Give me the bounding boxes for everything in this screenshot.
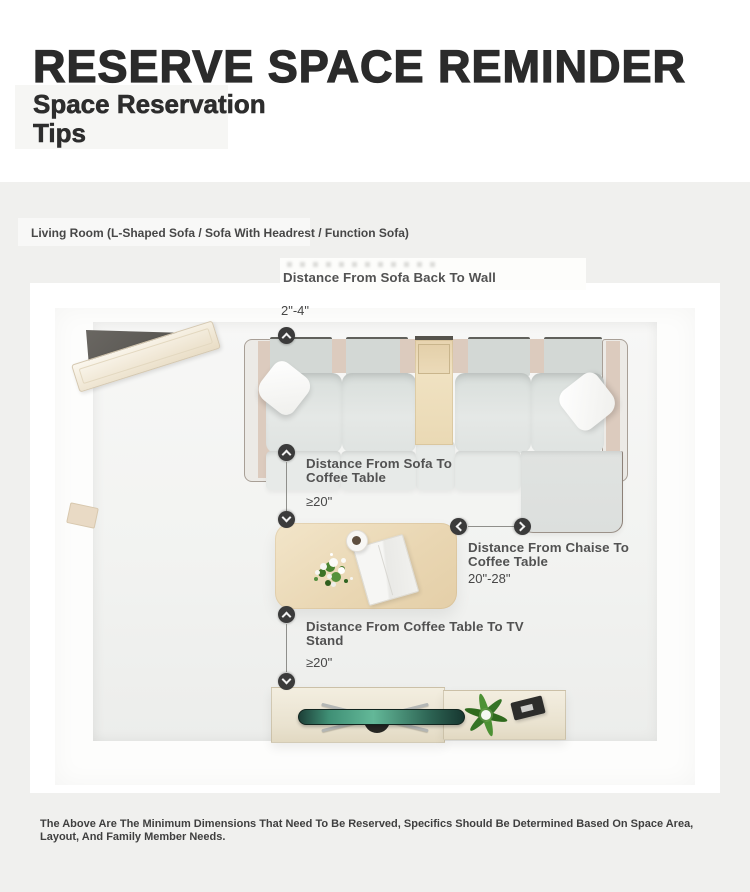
artifact-smudge bbox=[287, 262, 437, 267]
sofa-tray-rail-left bbox=[400, 339, 415, 373]
infographic-page: RESERVE SPACE REMINDER Space Reservation… bbox=[0, 0, 750, 892]
annotation-coffee-table-to-tv-stand-value: ≥20" bbox=[306, 655, 332, 670]
sofa-tray bbox=[415, 336, 453, 445]
annotation-chaise-to-coffee-table-value: 20"-28" bbox=[468, 571, 510, 586]
annotation-line bbox=[286, 624, 287, 672]
page-subtitle-line2: Tips bbox=[33, 119, 266, 148]
sofa-headrest-2 bbox=[346, 337, 408, 376]
coffee-cup bbox=[346, 530, 368, 552]
sofa-divider-2 bbox=[530, 339, 544, 373]
chevron-down-icon bbox=[278, 511, 295, 528]
annotation-sofa-back-to-wall-value: 2"-4" bbox=[281, 303, 309, 318]
sofa-back-cushion-2 bbox=[342, 373, 416, 453]
annotation-sofa-to-coffee-table-label: Distance From Sofa To Coffee Table bbox=[306, 457, 466, 485]
plant bbox=[462, 691, 510, 739]
chevron-right-icon bbox=[514, 518, 531, 535]
annotation-chaise-to-coffee-table-label: Distance From Chaise To Coffee Table bbox=[468, 541, 646, 569]
annotation-line bbox=[286, 462, 287, 511]
room-type-label: Living Room (L-Shaped Sofa / Sofa With H… bbox=[31, 226, 409, 240]
chevron-down-icon bbox=[278, 673, 295, 690]
annotation-coffee-table-to-tv-stand-label: Distance From Coffee Table To TV Stand bbox=[306, 620, 526, 648]
sofa-headrest-4 bbox=[544, 337, 602, 376]
footer-note: The Above Are The Minimum Dimensions Tha… bbox=[40, 818, 724, 844]
tv bbox=[298, 709, 465, 725]
page-subtitle-line1: Space Reservation bbox=[33, 90, 266, 119]
page-title: RESERVE SPACE REMINDER bbox=[33, 44, 686, 89]
chevron-up-icon bbox=[278, 444, 295, 461]
sofa-chaise bbox=[521, 451, 623, 533]
sofa-divider-1 bbox=[332, 339, 346, 373]
chevron-up-icon bbox=[278, 327, 295, 344]
page-subtitle: Space Reservation Tips bbox=[33, 90, 266, 148]
sofa-headrest-3 bbox=[468, 337, 530, 376]
chevron-up-icon bbox=[278, 606, 295, 623]
sofa-tray-rail-right bbox=[453, 339, 468, 373]
chevron-left-icon bbox=[450, 518, 467, 535]
annotation-sofa-to-coffee-table-value: ≥20" bbox=[306, 494, 332, 509]
sofa-back-cushion-3 bbox=[455, 373, 531, 453]
annotation-sofa-back-to-wall-label: Distance From Sofa Back To Wall bbox=[283, 271, 496, 285]
plant-flower bbox=[481, 710, 491, 720]
annotation-line bbox=[468, 526, 515, 527]
